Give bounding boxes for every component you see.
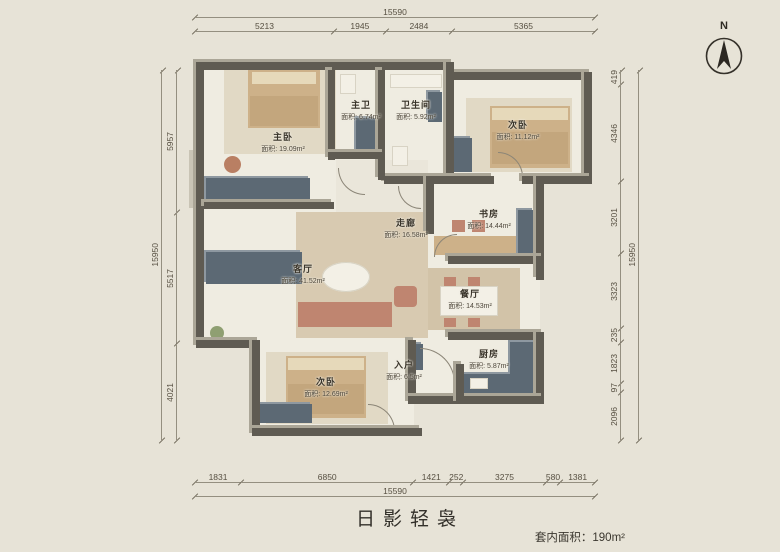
floor-plan: 主卧 面积: 19.09m² 主卫 面积: 6.74m² 卫生间 面积: 5.9… [0, 0, 780, 552]
chair [444, 277, 456, 286]
wall [448, 332, 544, 340]
room-label-master-bedroom: 主卧 面积: 19.09m² [261, 130, 305, 154]
wall [536, 256, 544, 280]
wall [328, 152, 385, 159]
wall [196, 62, 204, 348]
wall [584, 72, 592, 184]
room-label-living-room: 客厅 面积: 41.52m² [281, 262, 325, 286]
room-label-master-bath: 主卫 面积: 6.74m² [341, 98, 381, 122]
sink [470, 378, 488, 389]
wall [204, 202, 334, 209]
bed-blanket [250, 96, 318, 126]
wall [536, 176, 544, 264]
wall [536, 176, 592, 184]
bed-pillows [288, 358, 364, 370]
wall [448, 256, 544, 264]
room-label-corridor: 走廊 面积: 16.58m² [384, 216, 428, 240]
wall [252, 428, 422, 436]
room-label-study: 书房 面积: 14.44m² [467, 207, 511, 231]
wall [384, 176, 494, 184]
sofa [298, 302, 392, 327]
north-arrow-icon [704, 36, 744, 76]
wall [456, 396, 544, 404]
plant [210, 326, 224, 340]
chair [452, 220, 465, 232]
wardrobe [454, 138, 472, 172]
toilet [340, 74, 356, 94]
bookshelf [518, 210, 534, 255]
room-label-entry: 入户 面积: 6.5m² [386, 358, 422, 382]
bathtub [390, 74, 442, 88]
plan-title: 日影轻袅 [290, 504, 530, 531]
chair [468, 277, 480, 286]
room-label-bedroom-sw: 次卧 面积: 12.69m² [304, 375, 348, 399]
wall [456, 364, 464, 404]
dresser [206, 178, 310, 204]
room-label-kitchen: 厨房 面积: 5.87m² [469, 347, 509, 371]
kitchen-counter [510, 342, 537, 394]
bed-pillows [252, 72, 316, 84]
wall [328, 70, 335, 160]
armchair [394, 286, 417, 307]
wall [536, 332, 544, 404]
wall [252, 340, 260, 436]
room-label-dining-room: 餐厅 面积: 14.53m² [448, 287, 492, 311]
room-label-bathroom: 卫生间 面积: 5.92m² [396, 98, 436, 122]
toilet [392, 146, 408, 166]
wall [446, 72, 592, 80]
north-label: N [704, 20, 744, 32]
wardrobe [258, 404, 312, 423]
plan-area-note: 套内面积：190m² [420, 529, 625, 545]
chair [468, 318, 480, 327]
chair [444, 318, 456, 327]
wall [446, 62, 454, 184]
pouf [224, 156, 241, 173]
coffee-table [322, 262, 370, 292]
wall [196, 62, 454, 70]
wall [378, 70, 385, 180]
room-label-bedroom-ne: 次卧 面积: 11.12m² [496, 118, 539, 142]
wall [196, 340, 260, 348]
